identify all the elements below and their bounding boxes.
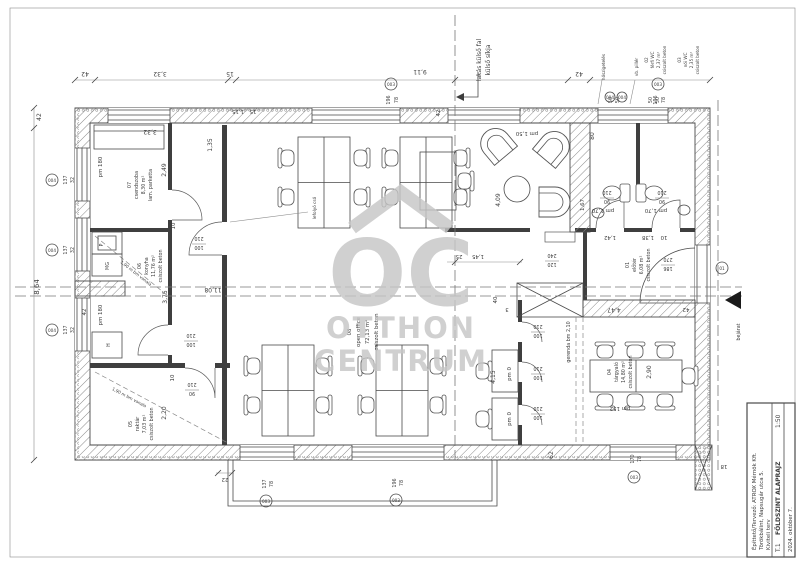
door-210d: 210 — [533, 323, 542, 329]
window-tag-left3: 004 137 32 — [46, 324, 76, 336]
pm-180a: pm 180 — [98, 156, 104, 177]
win-196b: 196 — [653, 95, 659, 104]
dim-864: 8,64 — [33, 279, 41, 295]
watermark-otthon: OTTHON — [326, 311, 476, 345]
room-04-num: 04 — [607, 369, 613, 375]
dim-42-right: 42 — [683, 306, 690, 312]
dim-22: 22 — [222, 476, 229, 482]
tag-003b: 003 — [654, 82, 662, 87]
room-01-name: előtér — [631, 258, 638, 272]
room-05-num: 05 — [128, 421, 134, 427]
note-insulation: hőszigetelés — [601, 54, 606, 80]
room-label-03: 03 női WC 2,35 m² csiszolt beton — [677, 45, 700, 74]
tag-004b: 004 — [48, 248, 56, 253]
room-04-floor: csiszolt beton — [628, 355, 634, 388]
titleblock-phase: Kiviteli terv — [766, 518, 772, 550]
door-210g: 210 — [602, 189, 611, 195]
note-outer-wall-1: lakás külső fal — [476, 38, 483, 81]
dim-138: 1,38 — [641, 234, 654, 240]
room-06-floor: csiszolt beton — [158, 249, 164, 282]
dim-15-top: 15 — [226, 70, 234, 77]
fridge-label: H — [106, 343, 112, 347]
door-100c: 100 — [533, 332, 542, 338]
door-270: 270 — [663, 256, 672, 262]
room-05-floor: csiszolt beton — [149, 407, 155, 440]
dim-249: 2,49 — [161, 163, 168, 177]
win-196a: 196 — [386, 95, 392, 104]
room-label-07: 07 csendszoba 8,30 m² lam. parketta — [127, 169, 154, 201]
titleblock-owner: Építtető/Tervező: ATROX Mérnök Kft. — [750, 452, 758, 550]
door-210b: 210 — [186, 332, 195, 338]
win-137c: 137 — [63, 325, 69, 334]
tag-01: 01 — [719, 266, 725, 271]
room-06-num: 06 — [137, 263, 143, 269]
door-120: 120 — [547, 261, 556, 267]
room-02-name: férfi WC — [650, 52, 655, 69]
window-tag-bottom1: 003 137 78 — [260, 479, 275, 507]
dim-447: 4,47 — [607, 306, 621, 313]
dim-1108: 11,08 — [204, 286, 221, 293]
titleblock-date: 2024. október 7. — [787, 507, 794, 552]
window-tag-bottom3: 003 170 78 — [628, 454, 643, 483]
tag-003e: 003 — [630, 475, 638, 480]
dim-409: 4,09 — [495, 193, 502, 207]
door-210h: 210 — [657, 189, 666, 195]
win-32a: 32 — [70, 177, 76, 183]
dim-15b: 15 — [250, 108, 257, 114]
dim-911: 9,11 — [413, 68, 427, 75]
sink-label: P — [99, 243, 105, 246]
dim-375: 3,75 — [162, 290, 169, 304]
dim-290: 2,90 — [646, 365, 653, 379]
dim-135: 1,35 — [207, 138, 214, 152]
door-100a: 100 — [194, 244, 203, 250]
win-170: 170 — [630, 454, 636, 463]
room-07-area: 8,30 m² — [141, 176, 147, 195]
dim-10a: 10 — [171, 222, 177, 229]
room-01-area: 6,08 m² — [639, 256, 645, 275]
note-headroom-1: 1,90 m bm vonala — [111, 386, 147, 409]
note-pillar: vb. pillér — [634, 58, 639, 77]
tag-003: 003 — [387, 82, 395, 87]
window-tag-left2: 004 137 32 — [46, 244, 76, 256]
pm-170a: pm 1,70 — [591, 207, 614, 213]
dim-62: 62 — [548, 451, 555, 459]
door-210a: 210 — [194, 235, 203, 241]
pm-152: pm 152 — [610, 405, 631, 411]
dim-18: 18 — [720, 463, 727, 469]
leader-arrow — [456, 93, 464, 101]
room-02-floor: csiszolt beton — [662, 45, 667, 74]
dim-42-wall: 42 — [436, 110, 442, 117]
room-01-num: 01 — [625, 262, 631, 268]
dim-415: 4,15 — [490, 370, 497, 384]
entrance-label: bejárat — [735, 323, 742, 340]
dishwasher-label: MG — [105, 262, 111, 270]
door-210c: 210 — [187, 381, 196, 387]
room-02-area: 2,37 m² — [656, 51, 661, 68]
tag-004a: 004 — [48, 178, 56, 183]
win-137d: 137 — [262, 479, 268, 488]
titleblock-address: Törökbálint, Napsugár utca 5. — [758, 470, 765, 551]
window-tag-196-top1: 003 196 78 — [385, 78, 400, 105]
note-drain: lefolyó cső — [312, 196, 317, 219]
tag-003d: 003 — [392, 498, 400, 503]
dim-332-room: 3,32 — [143, 128, 157, 135]
room-04-name: tárgyaló — [613, 362, 620, 382]
tag-004c: 004 — [48, 328, 56, 333]
room-07-name: csendszoba — [134, 171, 140, 199]
dim-332-top: 3,32 — [153, 70, 167, 77]
room-06-name: konyha — [144, 257, 150, 274]
room-07-floor: lam. parketta — [148, 169, 154, 201]
note-outer-wall-2: külső síkja — [485, 44, 492, 75]
door-100b: 100 — [186, 341, 195, 347]
room-01-floor: csiszolt beton — [646, 248, 652, 281]
drawing-sheet: 42 3,32 15 9,11 42 42 42 8,64 3,32 2,49 … — [0, 0, 800, 565]
dim-42-top2: 42 — [575, 70, 583, 77]
dim-42-left: 42 — [36, 113, 43, 121]
dim-42-top: 42 — [81, 70, 89, 77]
titleblock-title: FÖLDSZINT ALAPRAJZ — [775, 461, 782, 535]
room-03-floor: csiszolt beton — [695, 45, 700, 74]
dim-80: 80 — [589, 132, 596, 140]
dim-42-mid: 42 — [82, 309, 88, 316]
room-04-area: 14,80 m² — [621, 361, 627, 383]
room-05-area: 7,03 m² — [142, 415, 148, 434]
room-label-04: 04 tárgyaló 14,80 m² csiszolt beton — [607, 355, 634, 388]
win-78d: 78 — [399, 480, 405, 486]
dim-3: 3 — [505, 306, 508, 312]
door-90a: 90 — [189, 390, 195, 396]
door-240: 240 — [547, 252, 556, 258]
pm-0a: pm 0 — [507, 367, 513, 381]
dim-40: 40 — [493, 296, 499, 303]
room-02-num: 02 — [644, 57, 649, 63]
titleblock-sheet-no: T.1 — [775, 543, 782, 553]
tag-004e: 004 — [618, 95, 626, 100]
meeting-table — [590, 342, 698, 410]
room-06-area: 11,76 m² — [151, 255, 157, 277]
floor-plan-drawing: 42 3,32 15 9,11 42 42 42 8,64 3,32 2,49 … — [0, 0, 800, 565]
win-78a: 78 — [394, 97, 400, 103]
door-100e: 100 — [533, 414, 542, 420]
door-90b: 90 — [604, 198, 610, 204]
door-210e: 210 — [533, 365, 542, 371]
tag-004d: 004 — [606, 95, 614, 100]
dim-115: 1,15 — [232, 108, 244, 114]
room-label-01: 01 előtér 6,08 m² csiszolt beton — [625, 248, 652, 281]
window-tag-bottom2: 003 196 78 — [390, 478, 405, 506]
door-90c: 90 — [659, 198, 665, 204]
dim-10b: 10 — [170, 374, 176, 381]
door-100d: 100 — [533, 374, 542, 380]
tag-003c: 003 — [262, 499, 270, 504]
win-78c: 78 — [269, 481, 275, 487]
door-186: 186 — [663, 265, 672, 271]
door-210f: 210 — [533, 405, 542, 411]
room-03-name: női WC — [683, 53, 688, 68]
room-03-area: 2,35 m² — [689, 51, 694, 68]
pm-170b: pm 1,70 — [644, 207, 667, 213]
room-07-num: 07 — [127, 182, 133, 188]
dim-142: 1,42 — [604, 234, 616, 240]
watermark: OC OTTHON CENTRUM — [314, 192, 488, 378]
win-137a: 137 — [63, 175, 69, 184]
win-78e: 78 — [637, 456, 643, 462]
dim-220: 2,20 — [161, 406, 168, 420]
room-05-name: raktár — [134, 417, 141, 432]
window-tag-left1: 004 137 32 — [46, 174, 76, 186]
room-label-02: 02 férfi WC 2,37 m² csiszolt beton — [644, 45, 667, 74]
windows-left-wall — [75, 148, 90, 351]
title-block: Építtető/Tervező: ATROX Mérnök Kft. Törö… — [747, 403, 795, 557]
win-32b: 32 — [70, 247, 76, 253]
win-78b: 78 — [661, 97, 667, 103]
dim-10c: 10 — [660, 234, 667, 240]
win-32c: 32 — [70, 327, 76, 333]
watermark-centrum: CENTRUM — [314, 344, 488, 378]
note-beam: gerenda bm 2,10 — [566, 321, 572, 362]
pm-0b: pm 0 — [507, 412, 513, 426]
pm-180b: pm 180 — [98, 304, 104, 325]
room-03-num: 03 — [677, 57, 682, 63]
room-label-05: 05 raktár 7,03 m² csiszolt beton — [128, 407, 155, 440]
entrance-marker: bejárat — [725, 291, 742, 341]
win-196c: 196 — [392, 478, 398, 487]
titleblock-scale: 1:50 — [775, 414, 782, 428]
pm-150: pm 1,50 — [515, 130, 538, 136]
dim-167: 1,67 — [580, 199, 586, 211]
win-137b: 137 — [63, 245, 69, 254]
